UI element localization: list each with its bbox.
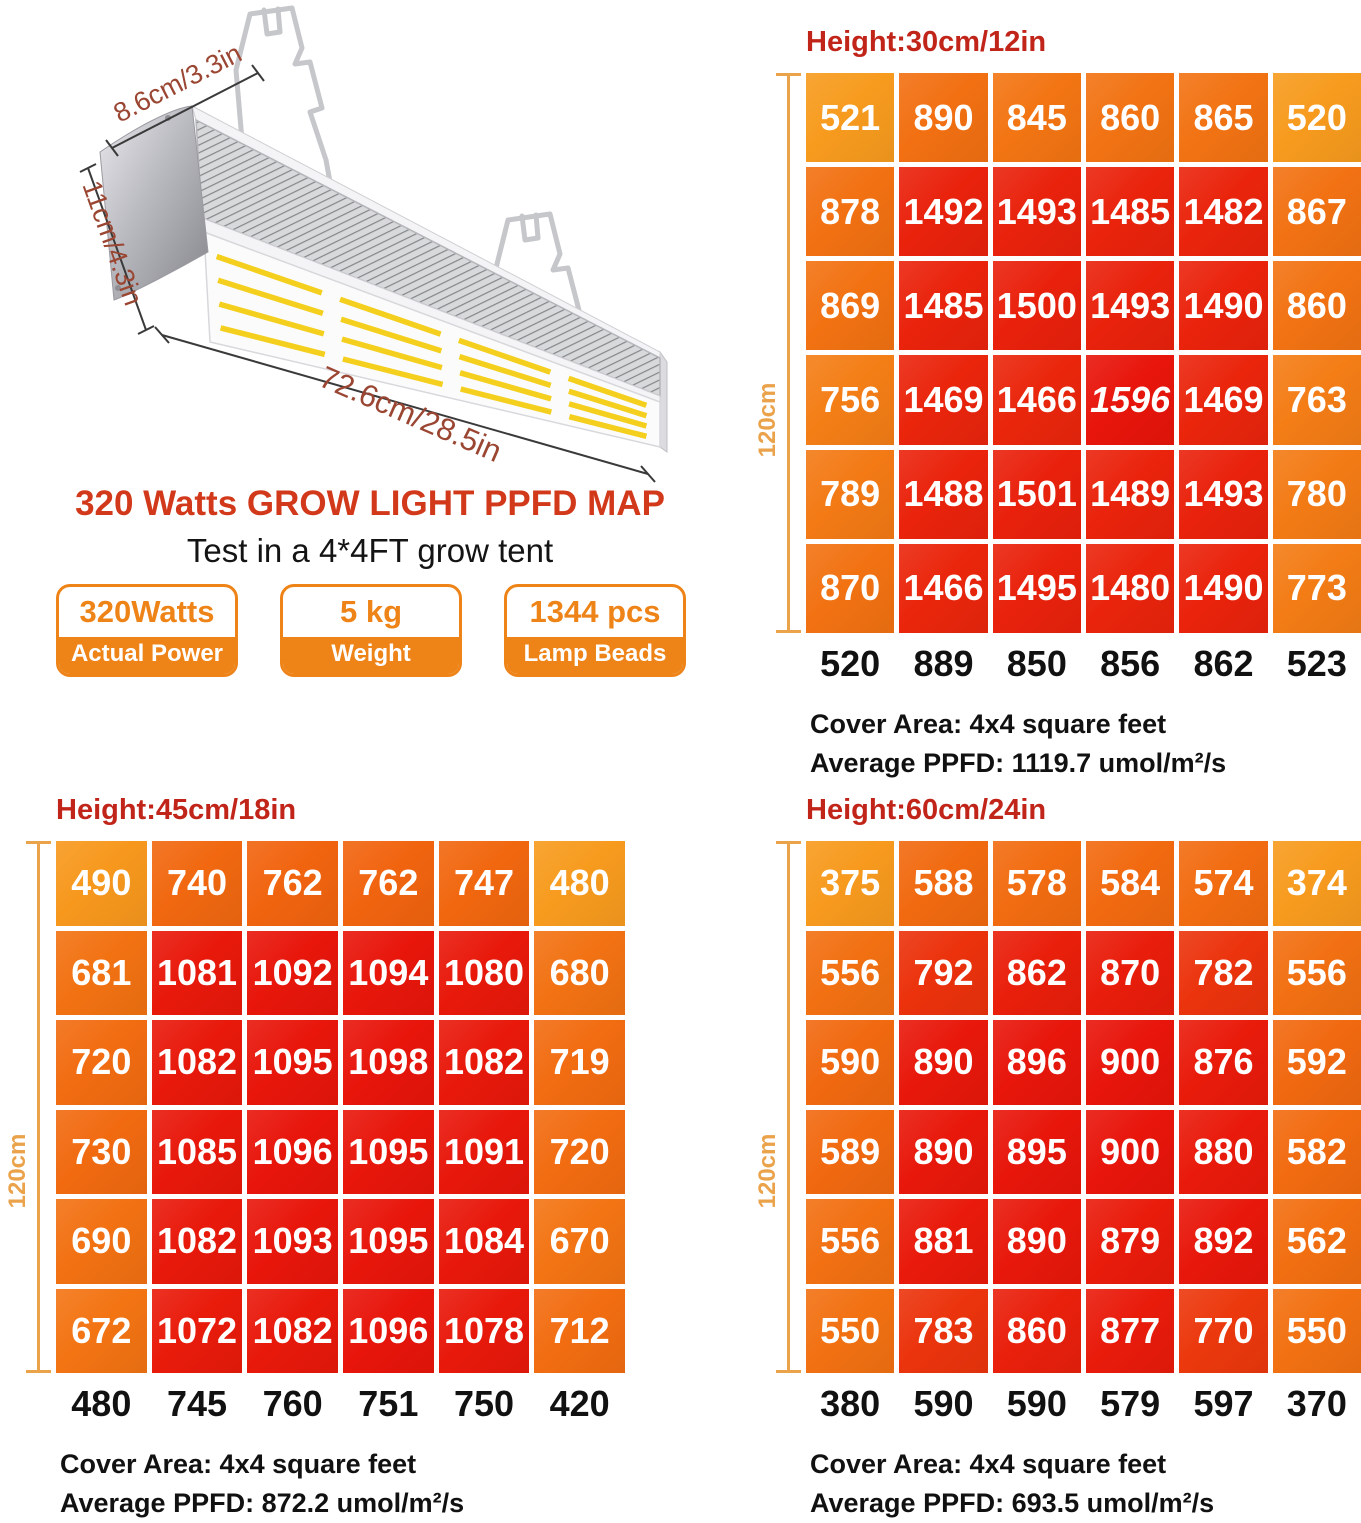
x-axis-value: 889 — [899, 643, 987, 685]
ppfd-map-45cm: Height:45cm/18in120cm4907407627627474806… — [0, 794, 625, 1523]
ppfd-cell: 1098 — [343, 1020, 434, 1105]
ppfd-cell: 1469 — [1179, 355, 1267, 444]
ppfd-cell: 1084 — [439, 1199, 530, 1284]
ppfd-cell: 845 — [993, 73, 1081, 162]
ppfd-cell: 1466 — [993, 355, 1081, 444]
ppfd-cell: 1072 — [152, 1289, 243, 1374]
ppfd-cell: 862 — [993, 931, 1081, 1016]
ppfd-cell: 1082 — [152, 1199, 243, 1284]
ppfd-cell: 860 — [1086, 73, 1174, 162]
height-ruler: 120cm — [750, 73, 806, 633]
ppfd-cell: 869 — [806, 261, 894, 350]
ppfd-cell: 1492 — [899, 167, 987, 256]
map-row: 120cm49074076276274748068110811092109410… — [0, 841, 625, 1523]
ppfd-cell: 712 — [534, 1289, 625, 1374]
ruler-bottom-cap — [776, 630, 801, 633]
x-axis-row: 380590590579597370 — [806, 1383, 1361, 1425]
badge-label: Weight — [283, 637, 459, 674]
ppfd-cell: 1501 — [993, 450, 1081, 539]
map-main: 5218908458608655208781492149314851482867… — [806, 73, 1361, 783]
ppfd-cell: 900 — [1086, 1020, 1174, 1105]
ppfd-cell: 1493 — [1179, 450, 1267, 539]
ppfd-cell: 890 — [899, 1020, 987, 1105]
ppfd-cell: 1489 — [1086, 450, 1174, 539]
x-axis-value: 523 — [1273, 643, 1361, 685]
map-row: 120cm37558857858457437455679286287078255… — [750, 841, 1361, 1523]
ppfd-cell: 720 — [534, 1110, 625, 1195]
ppfd-cell: 1500 — [993, 261, 1081, 350]
map-main: 4907407627627474806811081109210941080680… — [56, 841, 625, 1523]
map-notes: Cover Area: 4x4 square feetAverage PPFD:… — [56, 1445, 625, 1523]
ppfd-cell: 521 — [806, 73, 894, 162]
x-axis-value: 745 — [152, 1383, 243, 1425]
ppfd-cell: 1488 — [899, 450, 987, 539]
ppfd-cell: 895 — [993, 1110, 1081, 1195]
ppfd-cell: 1495 — [993, 544, 1081, 633]
ruler-line — [787, 841, 790, 1373]
x-axis-value: 420 — [534, 1383, 625, 1425]
ppfd-cell: 1466 — [899, 544, 987, 633]
ppfd-cell: 1482 — [1179, 167, 1267, 256]
ppfd-cell: 867 — [1273, 167, 1361, 256]
ppfd-cell: 1095 — [247, 1020, 338, 1105]
ppfd-cell: 1096 — [343, 1289, 434, 1374]
ppfd-cell: 1480 — [1086, 544, 1174, 633]
ppfd-cell: 490 — [56, 841, 147, 926]
ppfd-cell: 1490 — [1179, 544, 1267, 633]
ppfd-cell: 870 — [806, 544, 894, 633]
ppfd-grid: 4907407627627474806811081109210941080680… — [56, 841, 625, 1373]
badge-lamp-beads: 1344 pcs Lamp Beads — [504, 584, 686, 677]
ppfd-cell: 1085 — [152, 1110, 243, 1195]
ppfd-cell: 588 — [899, 841, 987, 926]
ppfd-cell: 1094 — [343, 931, 434, 1016]
ppfd-cell: 1091 — [439, 1110, 530, 1195]
ppfd-cell: 789 — [806, 450, 894, 539]
ppfd-cell: 690 — [56, 1199, 147, 1284]
ppfd-cell: 880 — [1179, 1110, 1267, 1195]
badge-value: 320Watts — [59, 587, 235, 637]
ppfd-cell: 592 — [1273, 1020, 1361, 1105]
x-axis-value: 597 — [1179, 1383, 1267, 1425]
ppfd-cell: 860 — [1273, 261, 1361, 350]
ruler-bottom-cap — [26, 1370, 51, 1373]
ppfd-cell: 773 — [1273, 544, 1361, 633]
ppfd-cell: 562 — [1273, 1199, 1361, 1284]
cover-area-text: Cover Area: 4x4 square feet — [810, 705, 1361, 744]
ppfd-cell: 890 — [993, 1199, 1081, 1284]
ppfd-cell: 1095 — [343, 1110, 434, 1195]
ppfd-cell: 762 — [247, 841, 338, 926]
ppfd-cell: 1490 — [1179, 261, 1267, 350]
ppfd-cell: 763 — [1273, 355, 1361, 444]
x-axis-value: 750 — [439, 1383, 530, 1425]
ppfd-map-60cm: Height:60cm/24in120cm3755885785845743745… — [750, 794, 1361, 1523]
ppfd-cell: 520 — [1273, 73, 1361, 162]
ppfd-cell: 892 — [1179, 1199, 1267, 1284]
x-axis-value: 862 — [1179, 643, 1267, 685]
x-axis-value: 751 — [343, 1383, 434, 1425]
x-axis-value: 380 — [806, 1383, 894, 1425]
x-axis-value: 579 — [1086, 1383, 1174, 1425]
ppfd-cell: 1093 — [247, 1199, 338, 1284]
ppfd-cell: 783 — [899, 1289, 987, 1374]
ppfd-grid: 5218908458608655208781492149314851482867… — [806, 73, 1361, 633]
ppfd-cell: 782 — [1179, 931, 1267, 1016]
x-axis-value: 590 — [993, 1383, 1081, 1425]
ppfd-cell: 780 — [1273, 450, 1361, 539]
ppfd-cell: 762 — [343, 841, 434, 926]
ppfd-cell: 480 — [534, 841, 625, 926]
ppfd-cell: 720 — [56, 1020, 147, 1105]
x-axis-value: 520 — [806, 643, 894, 685]
map-title: Height:30cm/12in — [806, 26, 1361, 59]
ppfd-cell: 584 — [1086, 841, 1174, 926]
ppfd-cell: 740 — [152, 841, 243, 926]
ppfd-cell: 670 — [534, 1199, 625, 1284]
ppfd-cell: 375 — [806, 841, 894, 926]
badge-label: Lamp Beads — [507, 637, 683, 674]
ppfd-cell: 1078 — [439, 1289, 530, 1374]
ppfd-cell: 1485 — [899, 261, 987, 350]
average-ppfd-text: Average PPFD: 1119.7 umol/m²/s — [810, 744, 1361, 783]
ruler-bottom-cap — [776, 1370, 801, 1373]
average-ppfd-text: Average PPFD: 693.5 umol/m²/s — [810, 1484, 1361, 1523]
grow-light-illustration: 8.6cm/3.3in 11cm/4.3in 72.6cm/28.5in — [40, 0, 700, 490]
ppfd-cell: 590 — [806, 1020, 894, 1105]
x-axis-value: 856 — [1086, 643, 1174, 685]
ppfd-cell: 1596 — [1086, 355, 1174, 444]
ppfd-cell: 881 — [899, 1199, 987, 1284]
ppfd-cell: 574 — [1179, 841, 1267, 926]
map-main: 3755885785845743745567928628707825565908… — [806, 841, 1361, 1523]
badge-label: Actual Power — [59, 637, 235, 674]
ppfd-cell: 870 — [1086, 931, 1174, 1016]
map-title: Height:45cm/18in — [56, 794, 625, 827]
map-notes: Cover Area: 4x4 square feetAverage PPFD:… — [806, 1445, 1361, 1523]
ppfd-cell: 589 — [806, 1110, 894, 1195]
ruler-label: 120cm — [754, 1133, 782, 1208]
intro-block: 320 Watts GROW LIGHT PPFD MAP Test in a … — [40, 484, 700, 570]
ppfd-cell: 792 — [899, 931, 987, 1016]
ppfd-cell: 1081 — [152, 931, 243, 1016]
ruler-line — [787, 73, 790, 633]
ppfd-cell: 1082 — [152, 1020, 243, 1105]
spec-badges: 320Watts Actual Power 5 kg Weight 1344 p… — [56, 584, 686, 677]
badge-weight: 5 kg Weight — [280, 584, 462, 677]
ppfd-cell: 890 — [899, 73, 987, 162]
ppfd-cell: 672 — [56, 1289, 147, 1374]
ppfd-cell: 730 — [56, 1110, 147, 1195]
ppfd-cell: 1092 — [247, 931, 338, 1016]
page-title: 320 Watts GROW LIGHT PPFD MAP — [40, 484, 700, 524]
map-title: Height:60cm/24in — [806, 794, 1361, 827]
page-subtitle: Test in a 4*4FT grow tent — [40, 532, 700, 570]
badge-value: 1344 pcs — [507, 587, 683, 637]
ppfd-cell: 556 — [806, 931, 894, 1016]
ppfd-cell: 756 — [806, 355, 894, 444]
ppfd-cell: 680 — [534, 931, 625, 1016]
ppfd-cell: 860 — [993, 1289, 1081, 1374]
ruler-label: 120cm — [4, 1133, 32, 1208]
ppfd-cell: 747 — [439, 841, 530, 926]
ruler-label: 120cm — [754, 383, 782, 458]
grow-light-drawing: 8.6cm/3.3in 11cm/4.3in 72.6cm/28.5in — [40, 0, 700, 490]
ppfd-cell: 879 — [1086, 1199, 1174, 1284]
average-ppfd-text: Average PPFD: 872.2 umol/m²/s — [60, 1484, 625, 1523]
x-axis-value: 850 — [993, 643, 1081, 685]
ppfd-cell: 550 — [806, 1289, 894, 1374]
ppfd-cell: 1082 — [247, 1289, 338, 1374]
x-axis-value: 760 — [247, 1383, 338, 1425]
ppfd-cell: 1469 — [899, 355, 987, 444]
ppfd-cell: 1485 — [1086, 167, 1174, 256]
ppfd-cell: 1095 — [343, 1199, 434, 1284]
x-axis-value: 590 — [899, 1383, 987, 1425]
ppfd-cell: 556 — [1273, 931, 1361, 1016]
ppfd-cell: 1096 — [247, 1110, 338, 1195]
ppfd-grid: 3755885785845743745567928628707825565908… — [806, 841, 1361, 1373]
ppfd-cell: 374 — [1273, 841, 1361, 926]
ppfd-cell: 865 — [1179, 73, 1267, 162]
ppfd-cell: 582 — [1273, 1110, 1361, 1195]
ppfd-map-30cm: Height:30cm/12in120cm5218908458608655208… — [750, 26, 1361, 783]
badge-actual-power: 320Watts Actual Power — [56, 584, 238, 677]
ppfd-cell: 900 — [1086, 1110, 1174, 1195]
ppfd-cell: 719 — [534, 1020, 625, 1105]
ppfd-cell: 681 — [56, 931, 147, 1016]
x-axis-value: 480 — [56, 1383, 147, 1425]
cover-area-text: Cover Area: 4x4 square feet — [810, 1445, 1361, 1484]
map-notes: Cover Area: 4x4 square feetAverage PPFD:… — [806, 705, 1361, 783]
ppfd-cell: 556 — [806, 1199, 894, 1284]
ppfd-cell: 896 — [993, 1020, 1081, 1105]
cover-area-text: Cover Area: 4x4 square feet — [60, 1445, 625, 1484]
ppfd-cell: 1493 — [1086, 261, 1174, 350]
height-ruler: 120cm — [750, 841, 806, 1373]
ppfd-cell: 877 — [1086, 1289, 1174, 1374]
ppfd-cell: 578 — [993, 841, 1081, 926]
ppfd-cell: 1082 — [439, 1020, 530, 1105]
map-row: 120cm52189084586086552087814921493148514… — [750, 73, 1361, 783]
badge-value: 5 kg — [283, 587, 459, 637]
x-axis-value: 370 — [1273, 1383, 1361, 1425]
ppfd-cell: 770 — [1179, 1289, 1267, 1374]
ppfd-cell: 550 — [1273, 1289, 1361, 1374]
ppfd-cell: 1080 — [439, 931, 530, 1016]
ppfd-cell: 878 — [806, 167, 894, 256]
x-axis-row: 520889850856862523 — [806, 643, 1361, 685]
ppfd-cell: 876 — [1179, 1020, 1267, 1105]
ppfd-cell: 890 — [899, 1110, 987, 1195]
x-axis-row: 480745760751750420 — [56, 1383, 625, 1425]
ruler-line — [37, 841, 40, 1373]
ppfd-cell: 1493 — [993, 167, 1081, 256]
height-ruler: 120cm — [0, 841, 56, 1373]
